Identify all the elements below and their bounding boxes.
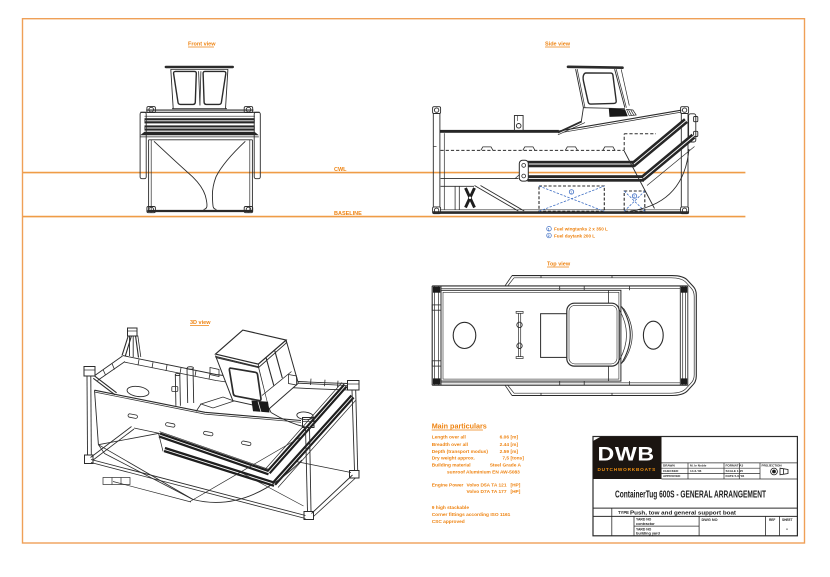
svg-text:sunroof Aluminium EN AW-5083: sunroof Aluminium EN AW-5083: [447, 470, 520, 476]
svg-text:Volvo D5A TA 121: Volvo D5A TA 121: [467, 482, 507, 488]
svg-text:Corner fittings according ISO: Corner fittings according ISO 1161: [432, 512, 511, 518]
svg-text:Push, tow and general support: Push, tow and general support boat: [630, 510, 736, 516]
svg-text:[HP]: [HP]: [511, 489, 521, 495]
svg-text:2.59: 2.59: [500, 449, 510, 455]
svg-text:1: 1: [548, 227, 550, 231]
svg-text:building yard: building yard: [636, 532, 661, 536]
svg-text:DWG NO: DWG NO: [702, 518, 718, 522]
svg-text:DUTCHWORKBOATS: DUTCHWORKBOATS: [598, 467, 657, 472]
svg-text:[m]: [m]: [511, 442, 519, 448]
svg-text:APPROVED: APPROVED: [663, 474, 681, 478]
svg-text:TYPE: TYPE: [618, 510, 629, 515]
svg-text:6.06: 6.06: [500, 435, 510, 441]
svg-text:DWB: DWB: [598, 444, 655, 465]
svg-text:Steel Grade A: Steel Grade A: [490, 463, 522, 469]
svg-text:-: -: [786, 527, 788, 533]
svg-text:SHEET: SHEET: [782, 518, 793, 522]
svg-text:Building material: Building material: [432, 463, 471, 469]
svg-text:[HP]: [HP]: [511, 482, 521, 488]
svg-text:2: 2: [548, 234, 550, 238]
svg-text:contractor: contractor: [636, 522, 655, 526]
svg-text:Side view: Side view: [545, 42, 571, 48]
svg-text:1: 1: [570, 191, 572, 195]
svg-text:Top view: Top view: [547, 262, 571, 268]
svg-text:[tons]: [tons]: [511, 456, 525, 462]
svg-text:ContainerTug 600S - GENERAL AR: ContainerTug 600S - GENERAL ARRANGEMENT: [615, 489, 766, 501]
svg-text:PROJECTION: PROJECTION: [762, 463, 783, 467]
svg-text:Engine Power: Engine Power: [432, 482, 464, 488]
svg-text:FORMAT A3: FORMAT A3: [726, 464, 744, 468]
svg-text:[m]: [m]: [511, 435, 519, 441]
svg-text:M. le Noble: M. le Noble: [690, 464, 707, 468]
svg-text:14-6-'06: 14-6-'06: [690, 469, 702, 473]
svg-text:CWL: CWL: [334, 167, 347, 173]
svg-text:2.44: 2.44: [500, 442, 510, 448]
svg-text:7,5: 7,5: [502, 456, 509, 462]
svg-text:DRAWN: DRAWN: [663, 464, 675, 468]
svg-text:3D view: 3D view: [190, 320, 211, 326]
svg-text:Main particulars: Main particulars: [432, 422, 487, 431]
svg-text:CHECKED: CHECKED: [663, 469, 679, 473]
svg-text:Length over all: Length over all: [432, 435, 466, 441]
svg-text:Fuel daytank 200 L: Fuel daytank 200 L: [554, 233, 595, 238]
svg-text:Front view: Front view: [188, 42, 216, 48]
svg-text:9 high stackable: 9 high stackable: [432, 505, 470, 511]
svg-text:[m]: [m]: [511, 449, 519, 455]
svg-text:Dry weight approx.: Dry weight approx.: [432, 456, 475, 462]
svg-text:Volvo D7A TA 177: Volvo D7A TA 177: [467, 489, 507, 495]
svg-text:BASELINE: BASELINE: [334, 211, 362, 217]
svg-text:Depth (transport modus): Depth (transport modus): [432, 449, 489, 455]
svg-text:DATE 5-6-'06: DATE 5-6-'06: [726, 474, 745, 478]
svg-text:CSC approved: CSC approved: [432, 519, 465, 525]
svg-text:Breadth over all: Breadth over all: [432, 442, 468, 448]
svg-text:REF: REF: [769, 518, 775, 522]
svg-text:2: 2: [633, 195, 635, 199]
svg-text:Fuel wingtanks 2 x 350 L: Fuel wingtanks 2 x 350 L: [554, 227, 608, 232]
svg-text:SCALE 1:25: SCALE 1:25: [726, 469, 744, 473]
